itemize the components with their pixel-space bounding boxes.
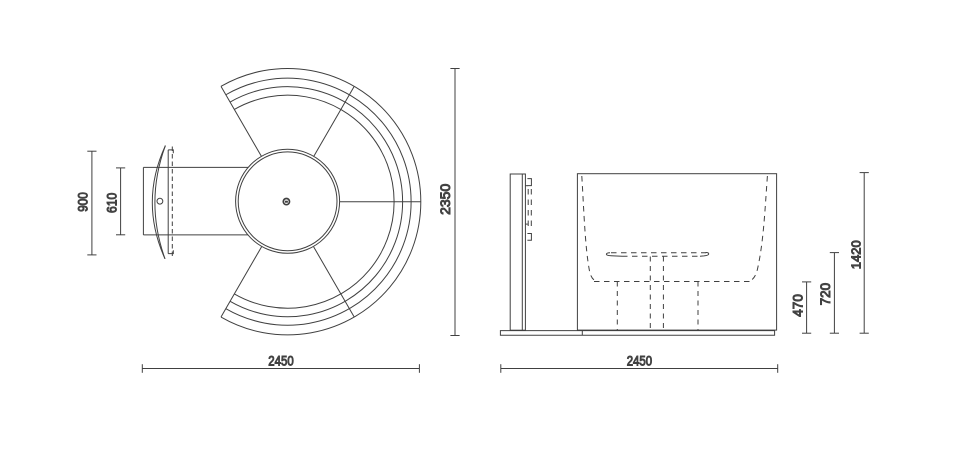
- svg-text:1420: 1420: [849, 240, 864, 269]
- svg-text:2350: 2350: [437, 184, 453, 215]
- svg-text:900: 900: [76, 192, 91, 212]
- svg-text:2450: 2450: [627, 354, 652, 369]
- svg-text:610: 610: [104, 193, 120, 213]
- svg-text:470: 470: [791, 294, 806, 317]
- svg-text:720: 720: [818, 283, 833, 306]
- svg-text:2450: 2450: [268, 354, 293, 369]
